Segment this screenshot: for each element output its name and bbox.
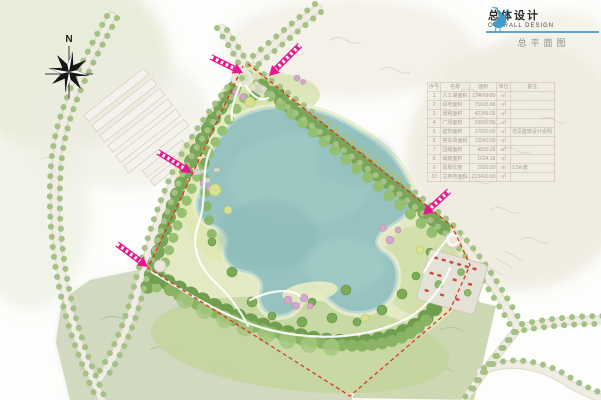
area-table-row: 2绿地面积 75605.98㎡ [428,101,555,110]
north-label: N [65,34,72,45]
area-table-row: 1人工湖面积 134673.00㎡ [428,92,555,101]
area-table-row: 9驳岸长度 2030.50m 2.5m宽 [428,164,555,173]
master-plan-sheet: N 总体设计 OVERALL DESIGN 总平面图 序号 名称 面积 单位 备… [0,0,601,400]
sheet-subtitle: 总平面图 [486,36,601,49]
area-table-row: 8铺装面积 1634.18㎡ [428,155,555,164]
title-block: 总体设计 OVERALL DESIGN 总平面图 [486,4,601,49]
area-table-row: 4广场面积 23690.00㎡ [428,119,555,128]
area-table-row: 10总用地面积 213400.00㎡ [428,173,555,182]
area-table-row: 3道路面积 42348.05㎡ [428,110,555,119]
site-plan-drawing: N [0,0,601,400]
area-table-row: 7园路面积 4833.28㎡ [428,146,555,155]
area-table-row: 5建筑面积 17500.00㎡ 详见建筑设计说明 [428,128,555,137]
area-table-header: 序号 名称 面积 单位 备注 [428,83,555,92]
area-table: 序号 名称 面积 单位 备注 1人工湖面积 134673.00㎡ 2绿地面积 7… [427,82,555,182]
crane-icon [486,4,512,34]
area-table-row: 6停车场面积 12540.00㎡ [428,137,555,146]
